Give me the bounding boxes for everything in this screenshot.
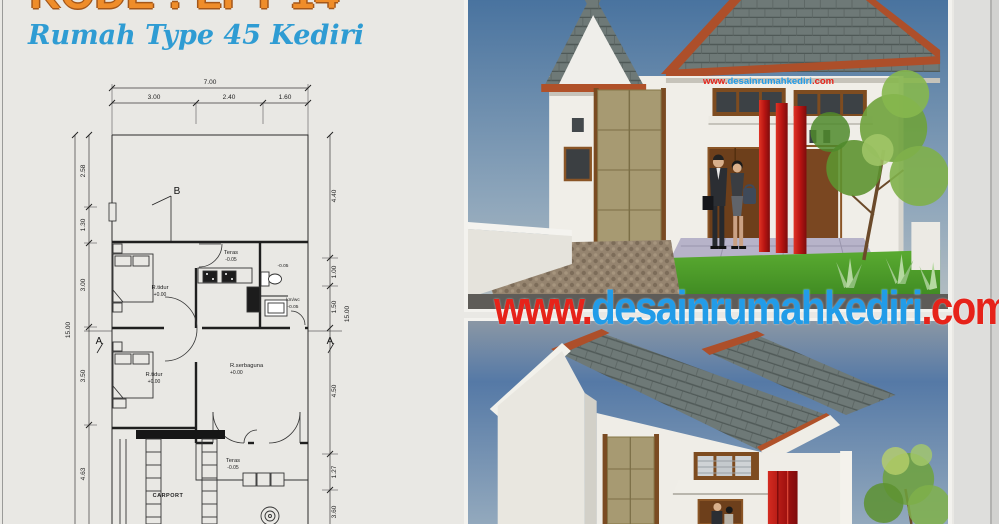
svg-text:2.58: 2.58 [80, 164, 87, 177]
wall-watermark-domain: desainrumahkediri [727, 76, 811, 87]
svg-text:km/wc: km/wc [286, 297, 300, 303]
svg-text:1.00: 1.00 [331, 265, 338, 278]
wall-watermark-tld: .com [812, 76, 834, 87]
svg-text:15.00: 15.00 [65, 321, 72, 338]
floor-plan-drawing: 7.00 3.00 2.40 1.60 15.00 2.58 1.30 3.00… [0, 0, 400, 524]
svg-text:-0.05: -0.05 [288, 304, 299, 310]
wall-watermark: www.desainrumahkediri.com [703, 76, 834, 87]
terrace-carport [120, 430, 308, 524]
svg-text:1.27: 1.27 [331, 465, 338, 478]
wall-watermark-prefix: www. [703, 76, 727, 87]
svg-text:1.30: 1.30 [80, 218, 87, 231]
site-watermark-domain: desainrumahkediri [591, 281, 921, 334]
svg-text:Teras: Teras [226, 458, 240, 464]
svg-text:15.00: 15.00 [344, 305, 351, 322]
svg-text:+0.00: +0.00 [154, 292, 167, 298]
property-boundary [109, 135, 308, 524]
svg-text:R.tidur: R.tidur [145, 372, 162, 378]
svg-text:4.50: 4.50 [331, 384, 338, 397]
red-pillars [759, 100, 807, 254]
site-watermark: www.desainrumahkediri.com [494, 280, 999, 335]
svg-text:+0.00: +0.00 [230, 370, 243, 376]
svg-text:3.50: 3.50 [80, 369, 87, 382]
svg-text:+0.00: +0.00 [148, 379, 161, 385]
svg-text:CARPORT: CARPORT [153, 493, 184, 499]
render-front-view [464, 0, 952, 312]
svg-text:R.serbaguna: R.serbaguna [230, 363, 264, 369]
site-watermark-tld: .com [921, 281, 999, 334]
svg-text:3.00: 3.00 [148, 94, 161, 101]
section-markers: A A B [96, 186, 334, 347]
svg-text:3.00: 3.00 [80, 278, 87, 291]
design-sheet: KODE : LPT 14 Rumah Type 45 Kediri [0, 0, 999, 524]
svg-text:2.40: 2.40 [223, 94, 236, 101]
svg-text:1.50: 1.50 [331, 300, 338, 313]
svg-text:B: B [174, 186, 181, 197]
svg-text:1.60: 1.60 [279, 94, 292, 101]
svg-text:Teras: Teras [224, 250, 238, 256]
dimension-lines [75, 84, 338, 524]
room-labels: R.tidur +0.00 Teras -0.05 -0.05 km/wc -0… [145, 250, 300, 499]
svg-text:-0.05: -0.05 [225, 257, 237, 263]
svg-text:4.63: 4.63 [80, 467, 87, 480]
svg-text:3.60: 3.60 [331, 505, 338, 518]
svg-text:4.40: 4.40 [331, 189, 338, 202]
svg-text:-0.05: -0.05 [227, 465, 239, 471]
svg-text:R.tidur: R.tidur [151, 285, 168, 291]
svg-text:-0.05: -0.05 [278, 263, 289, 269]
sheet-right-outer-margin [992, 0, 999, 524]
site-watermark-prefix: www. [494, 281, 591, 334]
render-perspective-view [464, 318, 952, 524]
svg-text:7.00: 7.00 [204, 79, 217, 86]
